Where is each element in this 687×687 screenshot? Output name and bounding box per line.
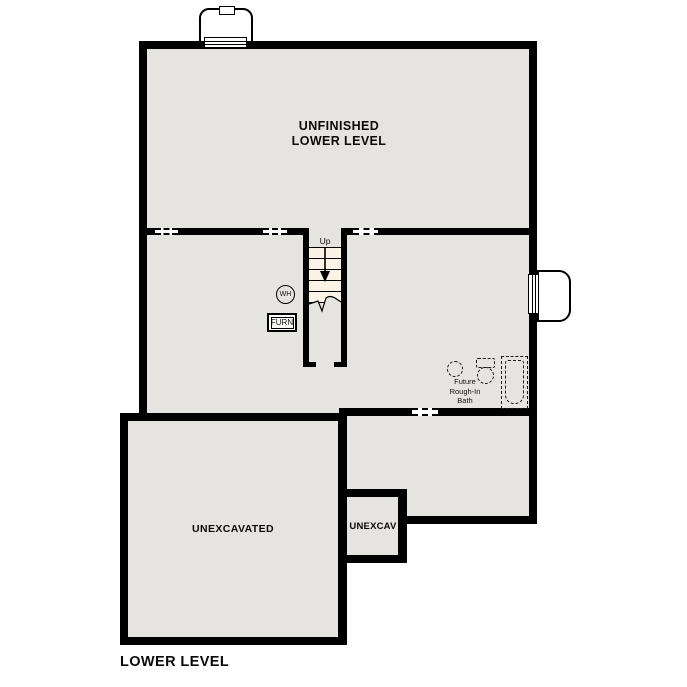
- water-heater-symbol: WH: [276, 285, 295, 304]
- window-well-top-notch: [219, 6, 235, 15]
- unfinished-label-line1: UNFINISHED: [239, 119, 439, 134]
- window-right-icon: [528, 274, 539, 314]
- window-well-right: [537, 270, 571, 322]
- unexcavated-south-wall: [120, 637, 347, 645]
- stair-wall-right-cap: [334, 362, 347, 367]
- unexcavated-west-wall: [120, 413, 128, 645]
- future-bath-label-line2: Rough-In: [433, 387, 497, 397]
- stair-wall-right: [341, 228, 347, 366]
- furnace-symbol: FURN: [267, 313, 297, 332]
- unexcav-label: UNEXCAV: [345, 521, 401, 532]
- shower-basin-icon: [505, 360, 524, 404]
- future-bath-label-line1: Future: [433, 377, 497, 387]
- future-bath-label: Future Rough-In Bath: [433, 377, 497, 406]
- unexcav-south-wall: [341, 555, 407, 563]
- window-opening-1: [155, 228, 178, 235]
- stairs-direction-arrow-icon: [318, 246, 332, 284]
- bath-south-wall: [339, 408, 537, 416]
- window-pane-line: [535, 275, 536, 313]
- building-south-wall: [405, 516, 537, 524]
- stair-wall-left-cap: [303, 362, 316, 367]
- stairs-up-label: Up: [309, 236, 341, 246]
- unexcavated-north-wall: [120, 413, 347, 421]
- window-top-icon: [204, 37, 247, 48]
- water-heater-label: WH: [280, 291, 292, 298]
- unfinished-label-line2: LOWER LEVEL: [239, 134, 439, 149]
- window-pane-line: [205, 44, 246, 45]
- window-opening-bath: [412, 408, 438, 416]
- future-bath-label-line3: Bath: [433, 396, 497, 406]
- unexcavated-label: UNEXCAVATED: [128, 523, 338, 535]
- window-pane-line: [205, 41, 246, 42]
- window-pane-line: [532, 275, 533, 313]
- unfinished-lower-level-label: UNFINISHED LOWER LEVEL: [239, 119, 439, 149]
- furnace-label: FURN: [271, 317, 294, 329]
- floor-plan: Up WH FURN Future Rough-In Bath UNFINISH…: [0, 0, 687, 687]
- wall-west: [139, 41, 147, 414]
- plan-title: LOWER LEVEL: [120, 654, 280, 670]
- wall-north: [139, 41, 537, 49]
- stairs-break-line-icon: [309, 293, 341, 315]
- window-opening-2: [263, 228, 287, 235]
- floor-drain-icon: [447, 361, 463, 377]
- window-opening-3: [353, 228, 380, 235]
